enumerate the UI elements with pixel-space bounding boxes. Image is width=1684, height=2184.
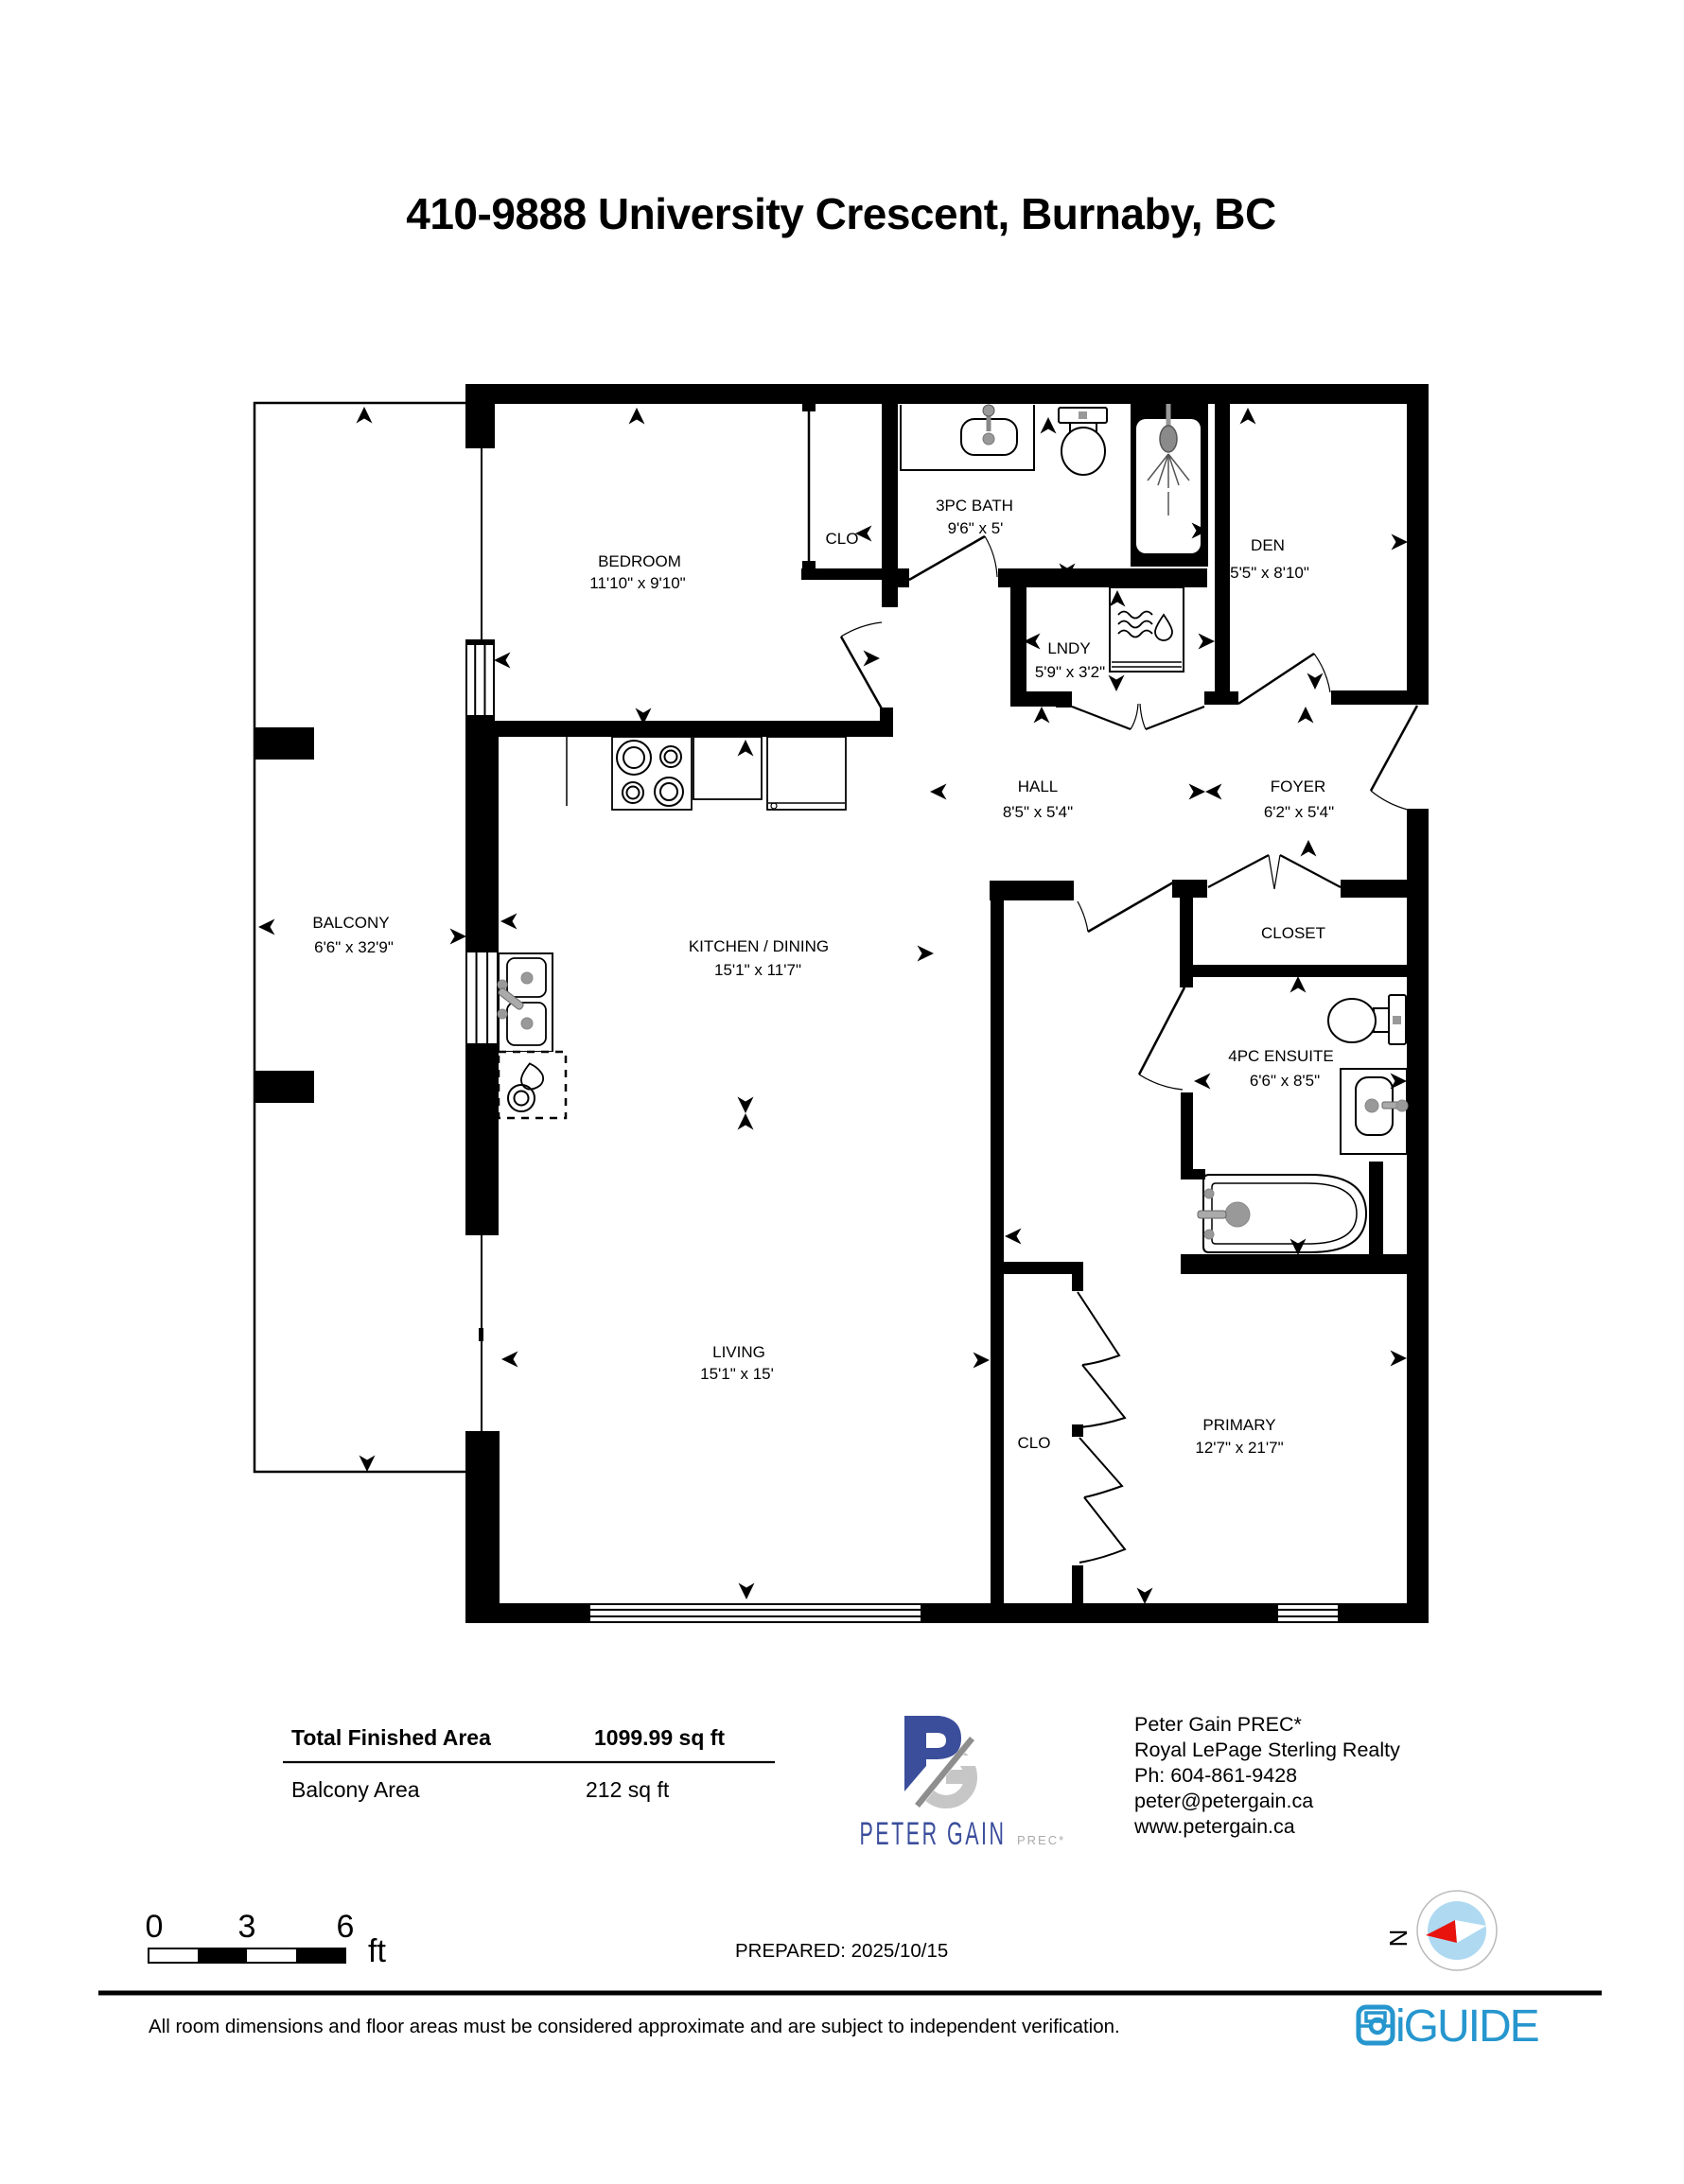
svg-text:HALL: HALL bbox=[1018, 778, 1059, 795]
svg-text:ft: ft bbox=[368, 1933, 386, 1969]
svg-text:212 sq ft: 212 sq ft bbox=[586, 1777, 670, 1802]
svg-text:3: 3 bbox=[238, 1909, 256, 1945]
svg-text:Royal LePage Sterling Realty: Royal LePage Sterling Realty bbox=[1134, 1738, 1400, 1761]
svg-text:BALCONY: BALCONY bbox=[312, 914, 389, 932]
svg-text:11'10" x 9'10": 11'10" x 9'10" bbox=[589, 574, 685, 592]
svg-text:6'6" x 32'9": 6'6" x 32'9" bbox=[314, 938, 394, 956]
svg-text:9'6" x 5': 9'6" x 5' bbox=[948, 519, 1004, 537]
svg-text:6: 6 bbox=[337, 1909, 355, 1945]
svg-text:LIVING: LIVING bbox=[712, 1343, 765, 1361]
svg-text:Balcony Area: Balcony Area bbox=[291, 1777, 420, 1802]
svg-text:Ph: 604-861-9428: Ph: 604-861-9428 bbox=[1134, 1764, 1297, 1787]
svg-text:5'5" x 8'10": 5'5" x 8'10" bbox=[1230, 564, 1309, 582]
svg-text:LNDY: LNDY bbox=[1047, 639, 1090, 657]
svg-text:PREC*: PREC* bbox=[1017, 1833, 1065, 1847]
svg-text:15'1" x 15': 15'1" x 15' bbox=[700, 1365, 774, 1383]
svg-text:All room dimensions and floor: All room dimensions and floor areas must… bbox=[149, 2016, 1120, 2037]
svg-text:KITCHEN / DINING: KITCHEN / DINING bbox=[689, 937, 829, 955]
svg-text:CLO: CLO bbox=[826, 530, 859, 548]
svg-text:CLOSET: CLOSET bbox=[1261, 924, 1325, 942]
svg-text:BEDROOM: BEDROOM bbox=[598, 552, 681, 570]
svg-text:DEN: DEN bbox=[1251, 536, 1285, 554]
svg-text:FOYER: FOYER bbox=[1271, 778, 1326, 795]
svg-text:15'1" x 11'7": 15'1" x 11'7" bbox=[714, 961, 801, 979]
svg-text:1099.99 sq ft: 1099.99 sq ft bbox=[594, 1725, 725, 1750]
svg-text:12'7" x 21'7": 12'7" x 21'7" bbox=[1195, 1439, 1283, 1457]
svg-text:4PC ENSUITE: 4PC ENSUITE bbox=[1228, 1047, 1333, 1065]
svg-text:CLO: CLO bbox=[1018, 1434, 1051, 1452]
svg-text:www.petergain.ca: www.petergain.ca bbox=[1133, 1815, 1295, 1838]
svg-text:PETER GAIN: PETER GAIN bbox=[860, 1816, 1007, 1852]
svg-text:8'5" x 5'4": 8'5" x 5'4" bbox=[1003, 803, 1073, 821]
svg-text:iGUIDE: iGUIDE bbox=[1395, 2001, 1538, 2052]
svg-text:Total Finished Area: Total Finished Area bbox=[291, 1725, 491, 1750]
svg-text:N: N bbox=[1384, 1930, 1412, 1948]
svg-text:410-9888 University Crescent,: 410-9888 University Crescent, Burnaby, B… bbox=[406, 189, 1276, 238]
svg-text:peter@petergain.ca: peter@petergain.ca bbox=[1134, 1790, 1313, 1812]
svg-text:3PC BATH: 3PC BATH bbox=[936, 497, 1013, 515]
svg-text:PRIMARY: PRIMARY bbox=[1202, 1416, 1275, 1434]
svg-text:6'2" x 5'4": 6'2" x 5'4" bbox=[1264, 803, 1334, 821]
svg-text:Peter Gain PREC*: Peter Gain PREC* bbox=[1134, 1713, 1302, 1736]
svg-text:6'6" x 8'5": 6'6" x 8'5" bbox=[1250, 1072, 1320, 1090]
svg-text:0: 0 bbox=[146, 1909, 164, 1945]
svg-text:5'9" x 3'2": 5'9" x 3'2" bbox=[1035, 663, 1105, 681]
svg-text:PREPARED: 2025/10/15: PREPARED: 2025/10/15 bbox=[735, 1940, 948, 1962]
